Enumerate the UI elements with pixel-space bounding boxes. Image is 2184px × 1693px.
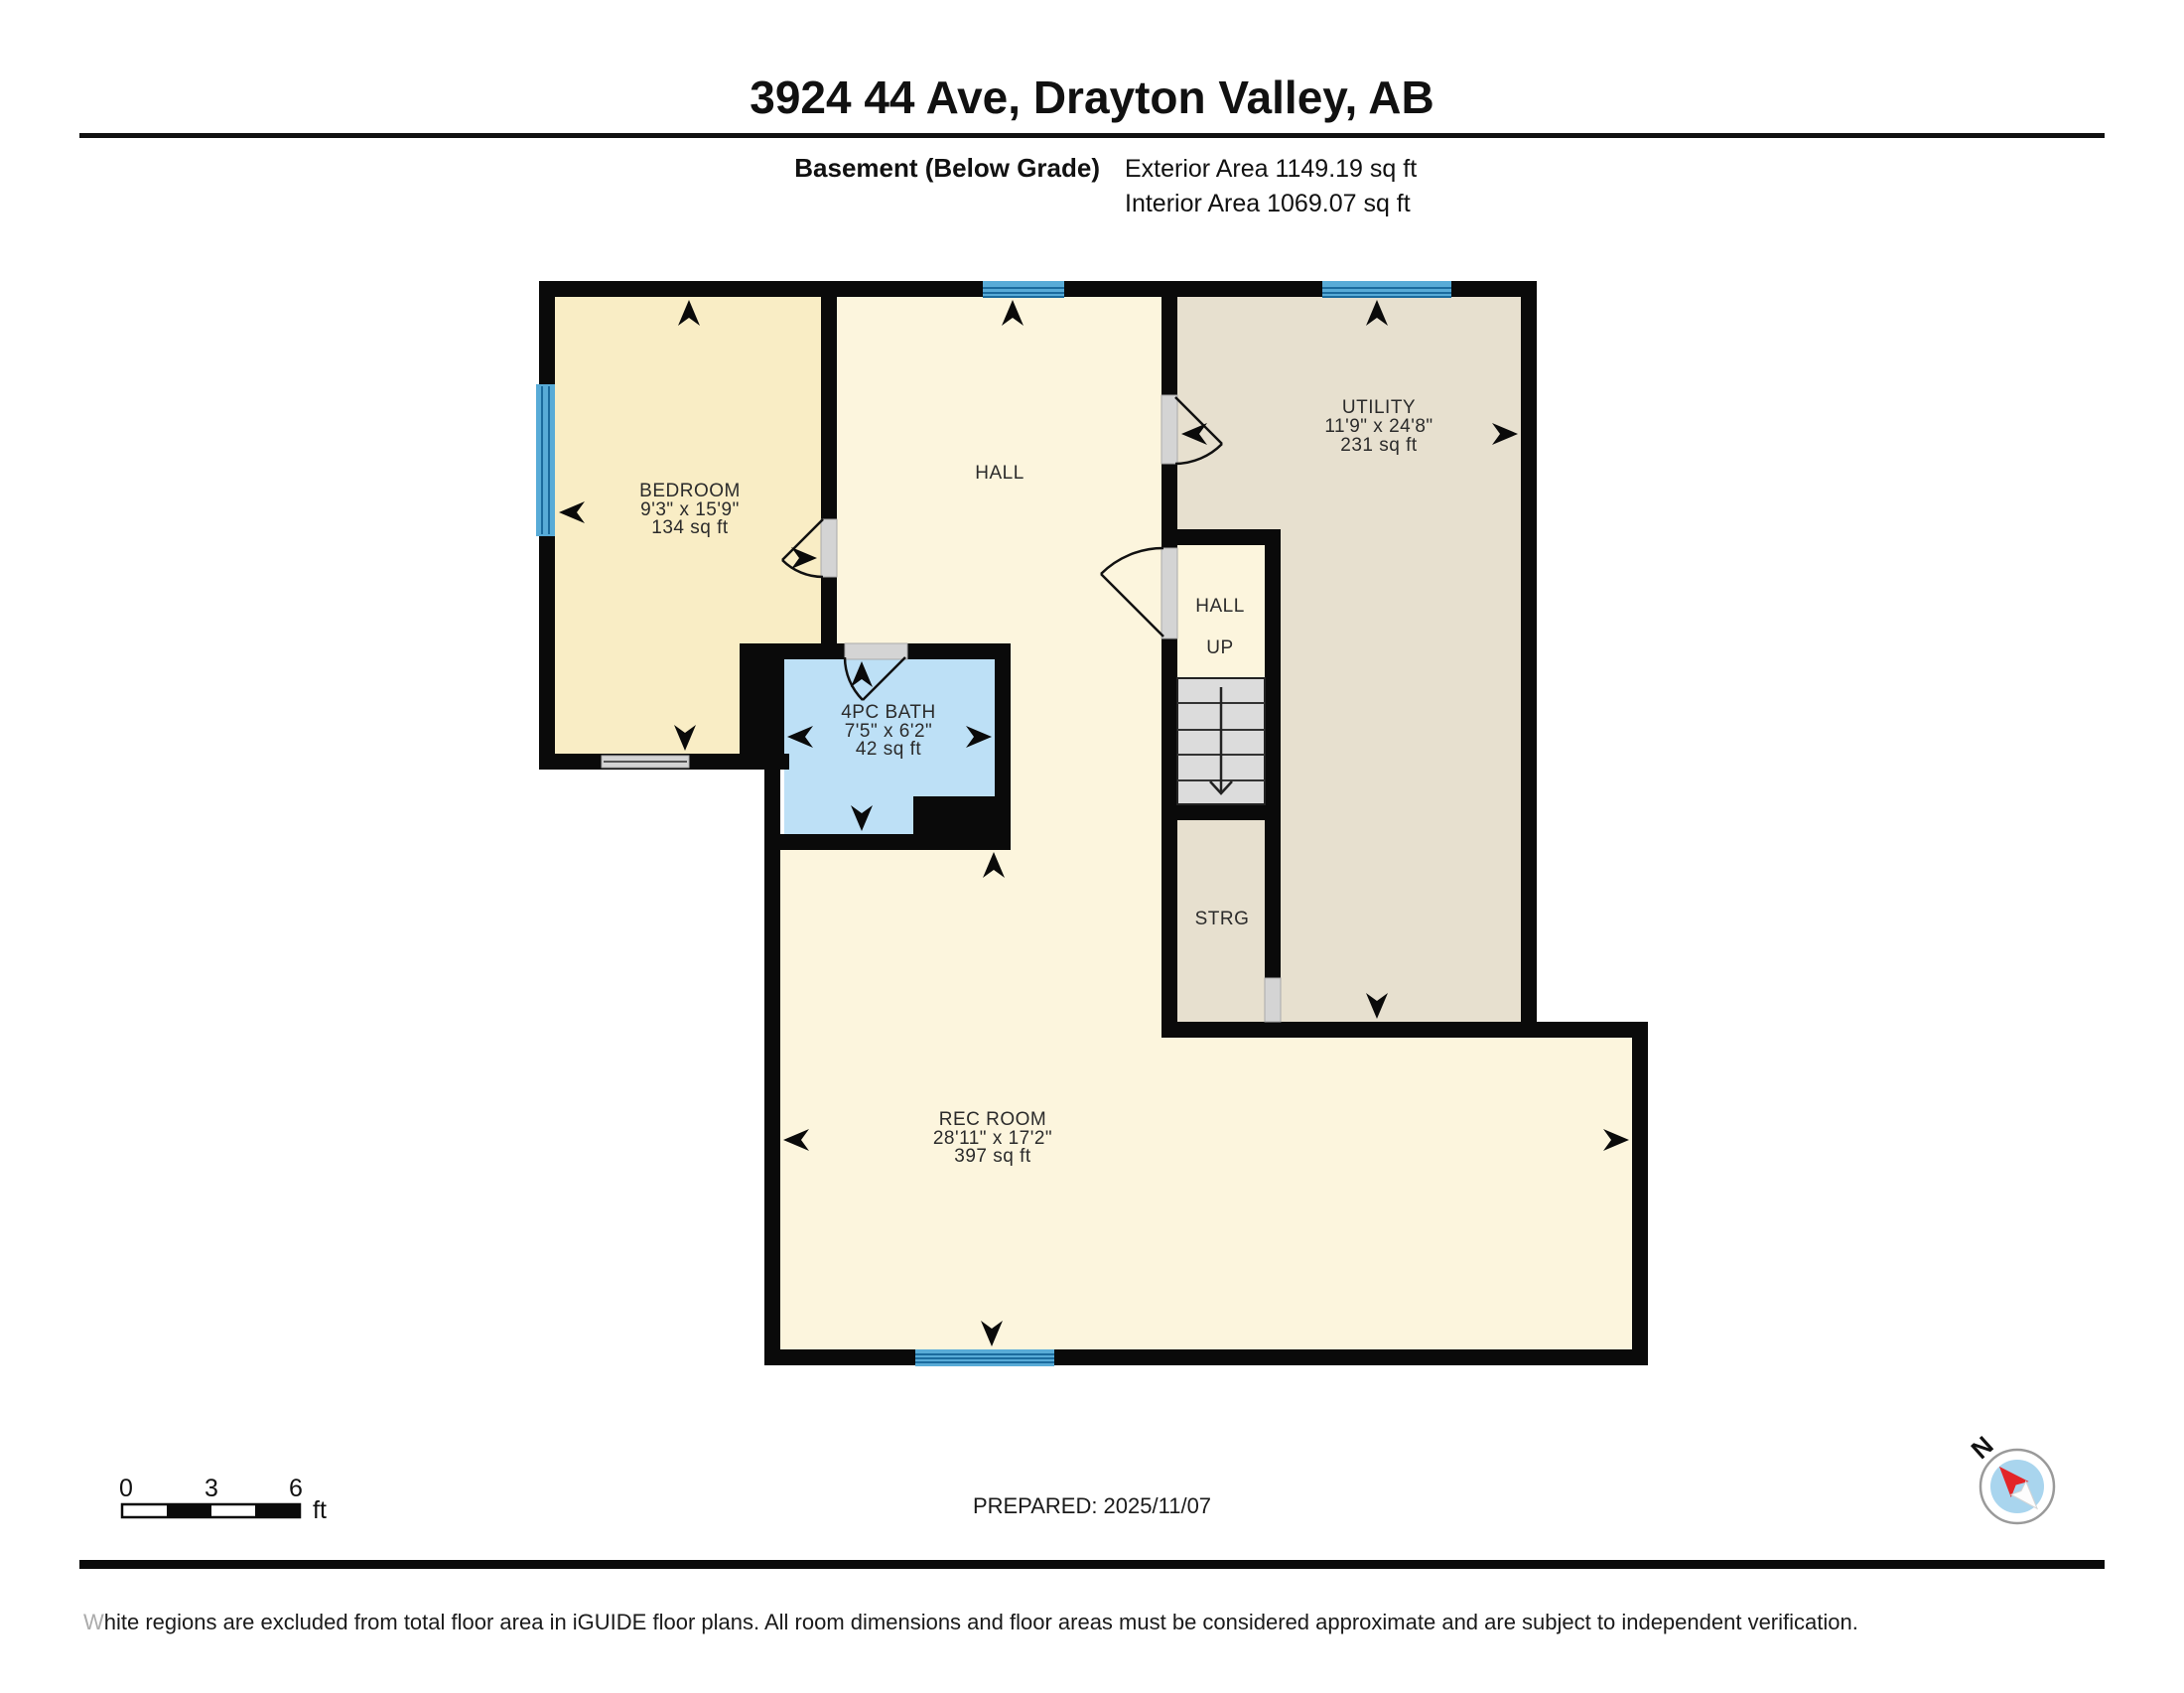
wall-bath-top-left (784, 643, 845, 659)
bath-label: 4PC BATH (841, 702, 936, 723)
rec-room-window-icon (915, 1349, 1054, 1366)
bath-area: 42 sq ft (856, 739, 922, 760)
stairs (1177, 678, 1265, 804)
wall-bath-notch (913, 796, 1011, 850)
utility-window-icon (1322, 281, 1451, 298)
wall-hall-up-left (1161, 638, 1177, 1038)
wall-bedroom-bath-divider (740, 643, 784, 770)
bedroom-window-icon (536, 384, 555, 536)
page-title: 3924 44 Ave, Drayton Valley, AB (750, 71, 1434, 123)
scale-mid-label: 3 (205, 1475, 218, 1502)
hall-up-door-sill (1161, 548, 1177, 638)
wall-rec-right (1632, 1022, 1648, 1365)
corridor-floor (1011, 643, 1161, 1047)
storage-door-sill (1265, 978, 1281, 1022)
disclaimer-body: hite regions are excluded from total flo… (104, 1610, 1858, 1634)
wall-rec-bottom (764, 1349, 1648, 1365)
interior-area-label: Interior Area 1069.07 sq ft (1125, 190, 1411, 217)
hall-up-direction-label: UP (1206, 637, 1233, 658)
utility-area: 231 sq ft (1340, 435, 1418, 456)
rec-room-label: REC ROOM (939, 1109, 1047, 1130)
floor-label: Basement (Below Grade) (794, 153, 1100, 183)
scale-segment-dark (167, 1504, 211, 1517)
wall-hall-utility-upper (1161, 293, 1177, 395)
bedroom-door-sill (821, 519, 837, 577)
scale-segment-dark (255, 1504, 300, 1517)
rec-room-area: 397 sq ft (954, 1146, 1031, 1167)
wall-hall-up-top (1161, 529, 1281, 545)
wall-bedroom-hall-upper (821, 293, 837, 519)
bath-door-sill (845, 643, 907, 659)
disclaimer: White regions are excluded from total fl… (83, 1610, 1858, 1634)
compass-icon: N (1964, 1428, 2054, 1523)
utility-label: UTILITY (1342, 397, 1416, 418)
floor-plan-page: 3924 44 Ave, Drayton Valley, AB Basement… (0, 0, 2184, 1688)
footer-divider (79, 1560, 2105, 1569)
wall-stairs-right (1265, 529, 1281, 1038)
prepared-date: PREPARED: 2025/11/07 (973, 1493, 1211, 1518)
bedroom-area: 134 sq ft (651, 517, 729, 538)
storage-label: STRG (1195, 909, 1250, 929)
scale-unit-label: ft (313, 1496, 327, 1524)
wall-rec-left (764, 842, 780, 1365)
wall-utility-right (1521, 281, 1537, 1038)
utility-door-sill (1161, 395, 1177, 464)
bedroom-label: BEDROOM (639, 481, 741, 501)
scale-start-label: 0 (119, 1475, 133, 1502)
hall-up-label: HALL (1195, 596, 1245, 617)
exterior-area-label: Exterior Area 1149.19 sq ft (1125, 155, 1417, 183)
wall-utility-bottom (1161, 1022, 1648, 1038)
header-divider (79, 133, 2105, 138)
disclaimer-lead: W (83, 1610, 104, 1634)
hall-window-icon (983, 281, 1064, 298)
utility-dims: 11'9" x 24'8" (1324, 416, 1433, 437)
hall-label: HALL (975, 463, 1024, 484)
scale-end-label: 6 (289, 1475, 303, 1502)
wall-below-stairs (1177, 804, 1265, 820)
scale-bar: 0 3 6 ft (119, 1475, 327, 1524)
